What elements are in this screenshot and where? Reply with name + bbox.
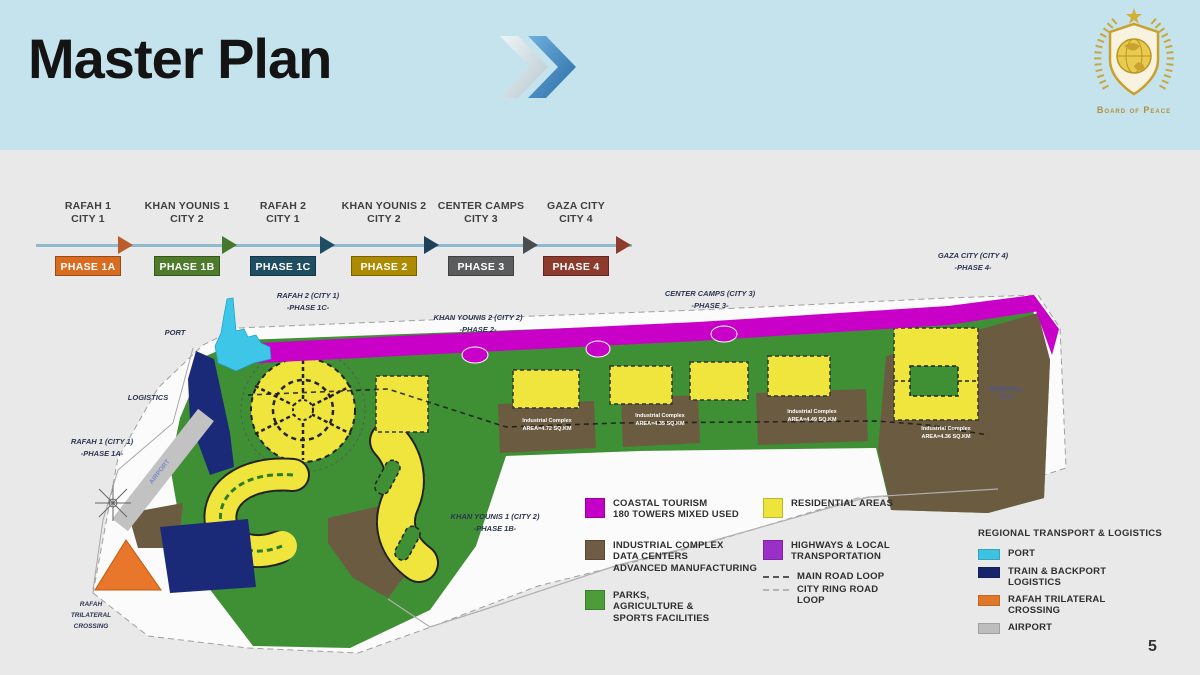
svg-text:PORT: PORT [165,328,187,337]
legend-swatch [763,540,783,560]
legend-item: INDUSTRIAL COMPLEXDATA CENTERSADVANCED M… [585,540,757,574]
legend-item: MAIN ROAD LOOP [763,571,884,582]
svg-text:LOGISTICS: LOGISTICS [128,393,168,402]
timeline-stage-label: CENTER CAMPSCITY 3 [426,200,536,226]
header-band: Master Plan [0,0,1200,150]
svg-text:AREA=4.49 SQ.KM: AREA=4.49 SQ.KM [787,417,836,423]
legend-swatch [978,595,1000,606]
svg-text:Industrial Complex: Industrial Complex [635,413,685,419]
svg-text:-PHASE 4-: -PHASE 4- [954,263,992,272]
svg-text:TRILATERAL: TRILATERAL [71,612,111,619]
svg-text:CITY 4: CITY 4 [998,395,1014,401]
page-number: 5 [1148,638,1157,656]
legend-item-label: TRAIN & BACKPORTLOGISTICS [1008,566,1106,589]
legend-swatch [585,590,605,610]
legend-item-label: INDUSTRIAL COMPLEXDATA CENTERSADVANCED M… [613,540,757,574]
chevron-arrows-icon [498,36,588,103]
legend-item-label: COASTAL TOURISM180 TOWERS MIXED USED [613,498,739,521]
legend-item: RESIDENTIAL AREAS [763,498,893,518]
legend-item: PARKS,AGRICULTURE &SPORTS FACILITIES [585,590,709,624]
svg-text:RAFAH: RAFAH [80,601,103,608]
legend-swatch [585,498,605,518]
legend-transport-title: REGIONAL TRANSPORT & LOGISTICS [978,528,1193,539]
svg-text:KHAN YOUNIS 2 (CITY 2): KHAN YOUNIS 2 (CITY 2) [434,313,523,322]
timeline-stage-label: GAZA CITYCITY 4 [521,200,631,226]
legend-item-label: AIRPORT [1008,622,1052,633]
legend-swatch [978,549,1000,560]
legend-item-label: CITY RING ROADLOOP [797,584,878,607]
legend-item: COASTAL TOURISM180 TOWERS MIXED USED [585,498,739,521]
legend-item-label: RESIDENTIAL AREAS [791,498,893,509]
svg-text:Industrial Complex: Industrial Complex [921,426,971,432]
svg-text:CENTER CAMPS (CITY 3): CENTER CAMPS (CITY 3) [665,289,756,298]
legend-item: PORT [978,548,1035,560]
slide: Master Plan [0,0,1200,675]
svg-text:RAFAH 1 (CITY 1): RAFAH 1 (CITY 1) [71,437,134,446]
train-backport-block [160,519,256,593]
svg-text:Industrial Complex: Industrial Complex [522,418,572,424]
legend-main-col2: RESIDENTIAL AREASHIGHWAYS & LOCALTRANSPO… [763,498,963,638]
dash-line-icon [763,576,789,578]
inner-green-block [910,366,958,396]
svg-text:-PHASE 1B-: -PHASE 1B- [474,524,517,533]
svg-text:-PHASE 1A-: -PHASE 1A- [81,449,124,458]
page-title: Master Plan [28,26,331,91]
svg-text:AREA=4.35 SQ.KM: AREA=4.35 SQ.KM [635,421,684,427]
timeline-stage-label: RAFAH 1CITY 1 [33,200,143,226]
logo-text: Board of Peace [1086,105,1182,115]
legend-transport: REGIONAL TRANSPORT & LOGISTICS PORTTRAIN… [978,528,1193,648]
svg-text:-PHASE 2-: -PHASE 2- [459,325,497,334]
legend-swatch [585,540,605,560]
svg-text:AREA=4.36 SQ.KM: AREA=4.36 SQ.KM [921,434,970,440]
compass-icon [95,485,131,521]
board-of-peace-logo: Board of Peace [1086,4,1182,116]
svg-text:-PHASE 1C-: -PHASE 1C- [287,303,330,312]
svg-text:KHAN YOUNIS 1 (CITY 2): KHAN YOUNIS 1 (CITY 2) [451,512,540,521]
legend-item: CITY RING ROADLOOP [763,584,878,607]
svg-text:AREA=4.72 SQ.KM: AREA=4.72 SQ.KM [522,426,571,432]
timeline-stage-label: KHAN YOUNIS 2CITY 2 [329,200,439,226]
svg-text:GAZA CITY (CITY 4): GAZA CITY (CITY 4) [938,251,1009,260]
timeline-stage-label: RAFAH 2CITY 1 [228,200,338,226]
svg-text:RAFAH 2 (CITY 1): RAFAH 2 (CITY 1) [277,291,340,300]
legend-main-col1: COASTAL TOURISM180 TOWERS MIXED USEDINDU… [585,498,770,638]
legend-swatch [978,623,1000,634]
svg-text:RESIDENTIAL: RESIDENTIAL [989,387,1022,393]
legend-item-label: PARKS,AGRICULTURE &SPORTS FACILITIES [613,590,709,624]
legend-swatch [763,498,783,518]
legend-swatch [978,567,1000,578]
timeline-stage-label: KHAN YOUNIS 1CITY 2 [132,200,242,226]
legend-item: TRAIN & BACKPORTLOGISTICS [978,566,1106,589]
svg-text:-PHASE 3-: -PHASE 3- [691,301,729,310]
dash-line-icon [763,589,789,591]
legend-item-label: HIGHWAYS & LOCALTRANSPORTATION [791,540,890,563]
legend-item: RAFAH TRILATERALCROSSING [978,594,1106,617]
legend-item: HIGHWAYS & LOCALTRANSPORTATION [763,540,890,563]
svg-text:CROSSING: CROSSING [74,623,109,630]
legend-item-label: MAIN ROAD LOOP [797,571,884,582]
legend-item: AIRPORT [978,622,1052,634]
svg-text:Industrial Complex: Industrial Complex [787,409,837,415]
legend-item-label: RAFAH TRILATERALCROSSING [1008,594,1106,617]
legend-item-label: PORT [1008,548,1035,559]
